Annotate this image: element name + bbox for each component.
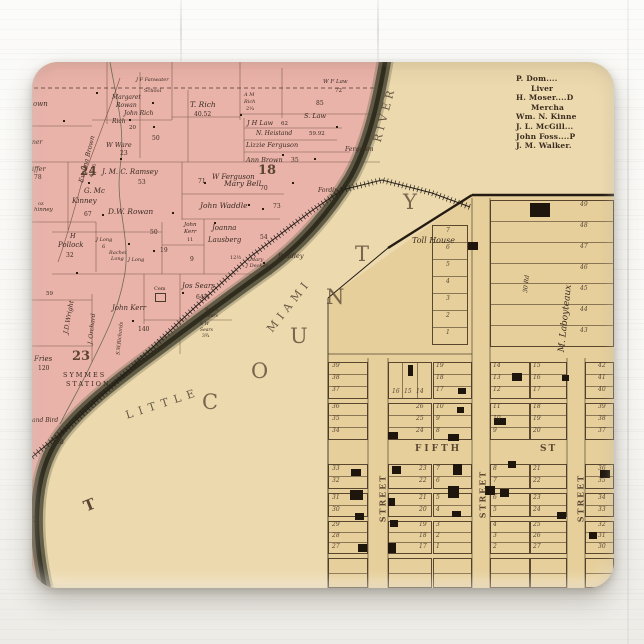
county-letter: O	[251, 361, 268, 382]
parcel-label: Pollock	[58, 242, 84, 249]
parcel-label: 64¾	[196, 295, 209, 301]
lot-number: 5	[493, 507, 497, 513]
lot-number: 8	[493, 466, 497, 472]
parcel-label: Rich	[112, 119, 126, 125]
lot-number: 45	[580, 286, 588, 292]
lot-number: 37	[332, 387, 340, 393]
parcel-label: 50	[150, 230, 158, 236]
lot-number: 7	[446, 228, 450, 234]
lot-number: 14	[416, 389, 424, 395]
parcel-label: own	[33, 101, 48, 108]
parcel-label: John Waddle	[200, 202, 248, 210]
farmstead-dot	[314, 158, 316, 160]
building-footprint	[468, 242, 478, 250]
farmstead-dot	[292, 182, 294, 184]
building-footprint	[530, 203, 550, 217]
building-footprint	[358, 544, 367, 552]
directory-line: J. L. McGill...	[516, 122, 614, 132]
farmstead-dot	[172, 212, 174, 214]
lot-number: 46	[580, 265, 588, 271]
lot-number: 25	[533, 522, 541, 528]
plat-block	[585, 558, 614, 588]
parcel-label: Kinney	[72, 198, 97, 205]
parcel-label: N. Heistand	[256, 131, 292, 137]
parcel-label: Margaret	[112, 95, 141, 101]
directory-line: Mercha	[516, 103, 614, 113]
lot-number: 34	[598, 495, 606, 501]
parcel-label: A M	[244, 93, 254, 98]
plat-block	[490, 558, 530, 588]
building-footprint	[448, 486, 459, 498]
street-label: ST	[540, 445, 557, 454]
lot-number: 6	[446, 245, 450, 251]
farmstead-dot	[88, 182, 90, 184]
lot-number: 10	[436, 404, 444, 410]
parcel-label: Fording	[318, 188, 342, 194]
building-footprint	[355, 513, 364, 520]
lot-number: 17	[436, 387, 444, 393]
county-letter: T	[355, 244, 369, 265]
building-footprint	[458, 388, 466, 394]
lot-number: 2	[493, 544, 497, 550]
parcel-label: 53	[138, 180, 146, 186]
lot-number: 5	[446, 262, 450, 268]
parcel-label: S W	[200, 323, 209, 328]
directory-line: P. Dom....	[516, 74, 614, 84]
lot-number: 15	[404, 389, 412, 395]
street-label: FIFTH	[415, 445, 462, 454]
parcel-label: 35	[291, 158, 299, 164]
plat-block	[490, 200, 614, 347]
parcel-label: John Kerr	[112, 305, 146, 312]
parcel-label: Lausberg	[208, 237, 241, 244]
lot-number: 32	[332, 478, 340, 484]
lot-number: 24	[416, 428, 424, 434]
lot-number: 13	[493, 375, 501, 381]
lot-number: 16	[533, 375, 541, 381]
lot-number: 32	[598, 522, 606, 528]
parcel-label: 59.92	[309, 132, 325, 138]
parcel-label: John Rich	[124, 111, 153, 117]
farmstead-dot	[76, 272, 78, 274]
county-letter: U	[290, 326, 308, 347]
lot-number: 38	[598, 416, 606, 422]
parcel-label: 59	[46, 292, 53, 298]
farmstead-dot	[240, 114, 242, 116]
lot-number: 25	[416, 416, 424, 422]
building-footprint	[351, 469, 361, 476]
directory-line: John Foss....P	[516, 132, 614, 142]
plat-block	[433, 558, 472, 588]
building-footprint	[500, 489, 509, 497]
parcel-label: W F Law	[323, 80, 348, 86]
parcel-label: 50	[152, 136, 160, 142]
farmstead-dot	[128, 243, 130, 245]
lot-number: 36	[598, 466, 606, 472]
parcel-label: 23	[120, 151, 128, 157]
lot-number: 7	[436, 466, 440, 472]
lot-number: 4	[446, 279, 450, 285]
lot-number: 42	[598, 363, 606, 369]
building-footprint	[562, 375, 569, 381]
lot-number: 28	[332, 533, 340, 539]
street-label: STREET	[576, 474, 584, 523]
parcel-label: 18	[258, 164, 276, 177]
parcel-label: 120	[38, 366, 49, 372]
building-footprint	[350, 490, 363, 500]
lot-number: 39	[332, 363, 340, 369]
lot-number: 22	[533, 478, 541, 484]
plat-block	[388, 558, 432, 588]
farmstead-dot	[152, 102, 154, 104]
lot-number: 38	[332, 375, 340, 381]
lot-number: 4	[493, 522, 497, 528]
parcel-label: 9	[190, 257, 194, 263]
lot-number: 27	[332, 544, 340, 550]
lot-number: 39	[598, 404, 606, 410]
parcel-label: Bradley	[278, 253, 304, 260]
parcel-label: 71	[198, 179, 206, 185]
lot-number: 37	[598, 428, 606, 434]
building-footprint	[589, 532, 597, 539]
lot-number: 19	[533, 416, 541, 422]
parcel-label: John	[184, 223, 197, 229]
parcel-label: J Long	[96, 238, 112, 243]
parcel-label: S. Law	[304, 113, 326, 120]
parcel-label: J F Fanwater	[136, 78, 169, 83]
parcel-label: SYMMES	[63, 372, 106, 379]
wood-seam	[377, 0, 379, 62]
parcel-label: 40.52	[194, 112, 211, 118]
parcel-label: J Decker	[246, 264, 268, 269]
lot-number: 3	[446, 296, 450, 302]
parcel-label: J. M. C. Ramsey	[102, 169, 158, 176]
directory-line: Liver	[516, 84, 614, 94]
parcel-label: 32	[66, 253, 74, 259]
parcel-label: Mary Bell	[224, 180, 261, 188]
lot-number: 7	[493, 478, 497, 484]
farmstead-dot	[262, 208, 264, 210]
building-footprint	[452, 511, 461, 517]
lot-number: 30	[332, 507, 340, 513]
lot-number: 43	[580, 328, 588, 334]
mousepad: ownEvelina Brown43 ½MargaretRowanJohn Ri…	[32, 62, 614, 588]
parcel-label: 62	[281, 122, 288, 128]
directory-line: Wm. N. Kinne	[516, 112, 614, 122]
farmstead-dot	[132, 320, 134, 322]
parcel-label: iffer	[32, 166, 46, 173]
street-label: STREET	[378, 474, 386, 523]
farmstead-dot	[102, 214, 104, 216]
building-footprint	[388, 498, 395, 506]
farmstead-dot	[63, 120, 65, 122]
farmstead-dot	[153, 126, 155, 128]
lot-number: 20	[533, 428, 541, 434]
map-artwork: ownEvelina Brown43 ½MargaretRowanJohn Ri…	[32, 62, 614, 588]
lot-number: 2	[446, 313, 450, 319]
lot-number: 16	[392, 389, 400, 395]
parcel-label: W Ware	[106, 142, 132, 149]
county-letter: Y	[403, 192, 417, 213]
building-footprint	[508, 461, 516, 468]
county-letter: C	[202, 392, 218, 413]
lot-number: 1	[446, 330, 450, 336]
building-footprint	[448, 434, 459, 441]
parcel-label: J H Law	[247, 120, 273, 127]
lot-number: 17	[419, 544, 427, 550]
plat-block	[530, 558, 567, 588]
farmstead-dot	[182, 292, 184, 294]
lot-number: 12	[493, 387, 501, 393]
parcel-label: 19	[160, 248, 168, 254]
parcel-label: Joanna	[212, 225, 236, 232]
farmstead-dot	[153, 250, 155, 252]
parcel-label: Long	[111, 257, 124, 262]
building-footprint	[457, 407, 464, 413]
parcel-label: hinney	[34, 208, 53, 214]
lot-number: 21	[533, 466, 541, 472]
lot-number: 23	[533, 495, 541, 501]
lot-number: 3	[493, 533, 497, 539]
lot-number: 19	[436, 363, 444, 369]
lot-number: 18	[533, 404, 541, 410]
building-footprint	[388, 543, 396, 553]
lot-number: 40	[598, 387, 606, 393]
building-footprint	[453, 464, 462, 475]
parcel-label: G. Mc	[84, 188, 105, 195]
lot-number: 18	[436, 375, 444, 381]
lot-number: 18	[419, 533, 427, 539]
lot-number: 35	[332, 416, 340, 422]
lot-number: 33	[598, 507, 606, 513]
parcel-label: Fries	[34, 356, 52, 363]
building-footprint	[557, 512, 566, 519]
building-footprint	[388, 432, 398, 439]
lot-number: 5	[436, 495, 440, 501]
lot-number: 34	[332, 428, 340, 434]
lot-number: 10	[493, 416, 501, 422]
parcel-label: 85	[316, 101, 324, 107]
lot-number: 9	[493, 428, 497, 434]
parcel-label: 6	[102, 245, 105, 250]
lot-number: 26	[533, 533, 541, 539]
parcel-label: 58	[56, 440, 64, 446]
parcel-label: 2	[33, 517, 37, 524]
parcel-label: Kerr	[184, 230, 196, 236]
parcel-label: Ferguson	[345, 147, 374, 153]
lot-number: 47	[580, 244, 588, 250]
building-footprint	[392, 466, 401, 474]
lot-number: 14	[493, 363, 501, 369]
lot-number: 26	[416, 404, 424, 410]
parcel-label: 54	[260, 235, 268, 241]
lot-number: 3	[436, 522, 440, 528]
cemetery-outline	[155, 293, 166, 302]
parcel-label: Sears	[205, 315, 218, 320]
plat-block	[328, 558, 368, 588]
parcel-label: Jos Sears	[182, 283, 215, 290]
parcel-label: D.W. Rowan	[108, 208, 153, 216]
parcel-label: Sears	[200, 329, 213, 334]
county-letter: N	[326, 287, 344, 308]
lot-number: 27	[533, 544, 541, 550]
lot-number: 22	[419, 478, 427, 484]
parcel-label: 78	[34, 175, 42, 181]
lot-number: 24	[533, 507, 541, 513]
parcel-label: 20	[129, 126, 136, 132]
farmstead-dot	[96, 92, 98, 94]
farmstead-dot	[120, 158, 122, 160]
parcel-label: and Bird	[32, 418, 58, 424]
directory-line: H. Moser....D	[516, 93, 614, 103]
lot-number: 15	[533, 363, 541, 369]
lot-number: 6	[493, 495, 497, 501]
parcel-label: 140	[138, 327, 149, 333]
parcel-label: 24	[80, 165, 97, 177]
parcel-label: Rowan	[116, 103, 137, 109]
parcel-label: T. Rich	[190, 101, 216, 109]
directory-line: J. M. Walker.	[516, 141, 614, 151]
lot-number: 35	[598, 478, 606, 484]
farmstead-dot	[248, 204, 250, 206]
lot-number: 30	[598, 544, 606, 550]
lot-number: 2	[436, 533, 440, 539]
parcel-label: ner	[32, 140, 42, 146]
parcel-label: W 1¼	[205, 309, 218, 314]
lot-number: 31	[598, 533, 606, 539]
parcel-label: Rich	[244, 100, 255, 105]
lot-number: 48	[580, 223, 588, 229]
parcel-label: 67	[84, 212, 92, 218]
business-directory: P. Dom....LiverH. Moser....DMerchaWm. N.…	[516, 74, 614, 151]
wood-seam	[180, 0, 182, 62]
lot-number: 36	[332, 404, 340, 410]
parcel-label: 73	[273, 204, 281, 210]
building-footprint	[512, 373, 522, 381]
lot-number: 17	[533, 387, 541, 393]
lot-number: 19	[419, 522, 427, 528]
parcel-label: 11	[187, 238, 193, 243]
building-footprint	[390, 520, 398, 527]
parcel-label: J Long	[128, 258, 144, 263]
parcel-label: 2¼	[246, 107, 254, 112]
lot-number: 33	[332, 466, 340, 472]
parcel-label: 72	[335, 89, 342, 95]
parcel-label: H	[70, 233, 76, 240]
lot-number: 23	[419, 466, 427, 472]
wood-seam	[627, 0, 629, 644]
parcel-label: 12½	[230, 256, 241, 261]
lot-number: 8	[436, 428, 440, 434]
farmstead-dot	[336, 126, 338, 128]
parcel-label: 3¾	[202, 335, 209, 340]
parcel-label: School	[144, 89, 161, 94]
lot-number: 29	[332, 522, 340, 528]
lot-number: 49	[580, 202, 588, 208]
parcel-label: STATION	[66, 381, 111, 388]
parcel-label: Cem	[154, 287, 166, 292]
lot-number: 1	[436, 544, 440, 550]
building-footprint	[408, 365, 413, 376]
parcel-label: 70	[260, 186, 268, 192]
lot-number: 6	[436, 478, 440, 484]
parcel-label: 23	[72, 350, 90, 363]
lot-number: 4	[436, 507, 440, 513]
lot-number: 21	[419, 495, 427, 501]
farmstead-dot	[129, 119, 131, 121]
lot-number: 31	[332, 495, 340, 501]
parcel-label: Lizzie Ferguson	[246, 142, 298, 149]
lot-number: 44	[580, 307, 588, 313]
lot-number: 9	[436, 416, 440, 422]
street-label: STREET	[478, 470, 486, 519]
lot-number: 11	[493, 404, 501, 410]
lot-number: 41	[598, 375, 606, 381]
lot-number: 20	[419, 507, 427, 513]
